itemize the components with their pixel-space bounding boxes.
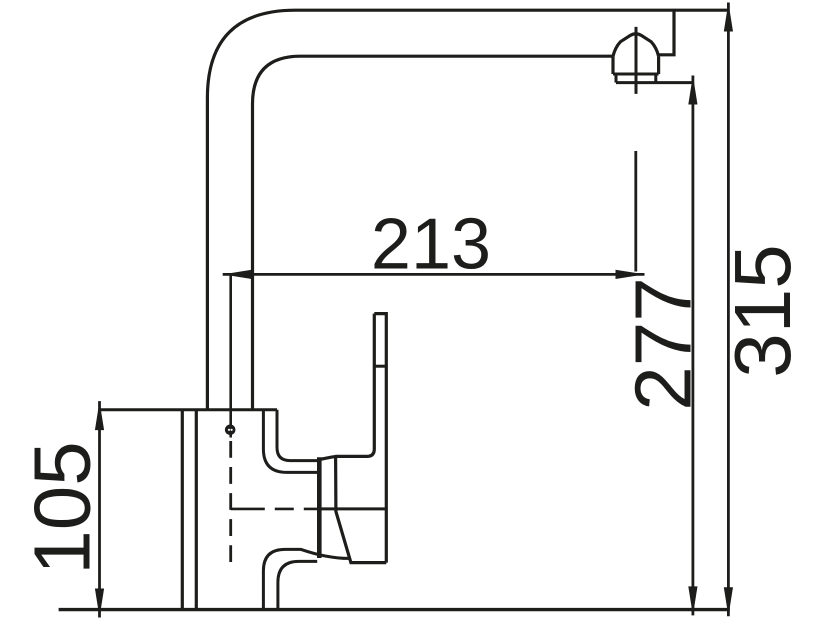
svg-text:105: 105 <box>18 441 107 574</box>
svg-text:213: 213 <box>371 205 491 285</box>
svg-text:277: 277 <box>619 277 708 410</box>
svg-text:315: 315 <box>718 244 807 377</box>
